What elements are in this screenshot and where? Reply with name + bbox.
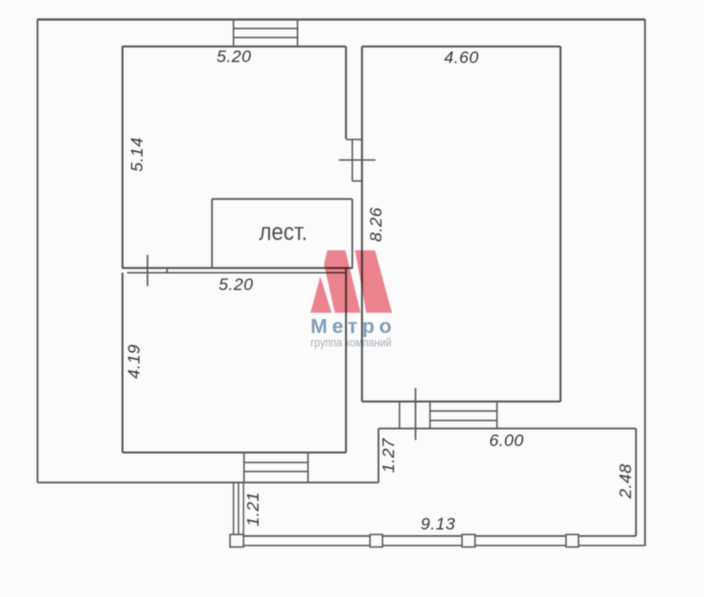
- svg-text:1.21: 1.21: [244, 492, 263, 527]
- svg-text:2.48: 2.48: [616, 464, 635, 500]
- svg-text:5.14: 5.14: [128, 137, 147, 172]
- svg-text:5.20: 5.20: [219, 275, 254, 294]
- svg-text:6.00: 6.00: [489, 431, 524, 450]
- svg-text:лест.: лест.: [259, 219, 308, 246]
- svg-text:5.20: 5.20: [217, 47, 252, 66]
- svg-text:группа компаний: группа компаний: [311, 336, 392, 349]
- svg-text:1.27: 1.27: [379, 438, 398, 473]
- svg-text:9.13: 9.13: [421, 515, 456, 534]
- svg-text:Метро: Метро: [311, 316, 392, 338]
- svg-text:4.19: 4.19: [125, 344, 144, 379]
- svg-text:8.26: 8.26: [367, 207, 386, 242]
- svg-text:4.60: 4.60: [444, 48, 479, 67]
